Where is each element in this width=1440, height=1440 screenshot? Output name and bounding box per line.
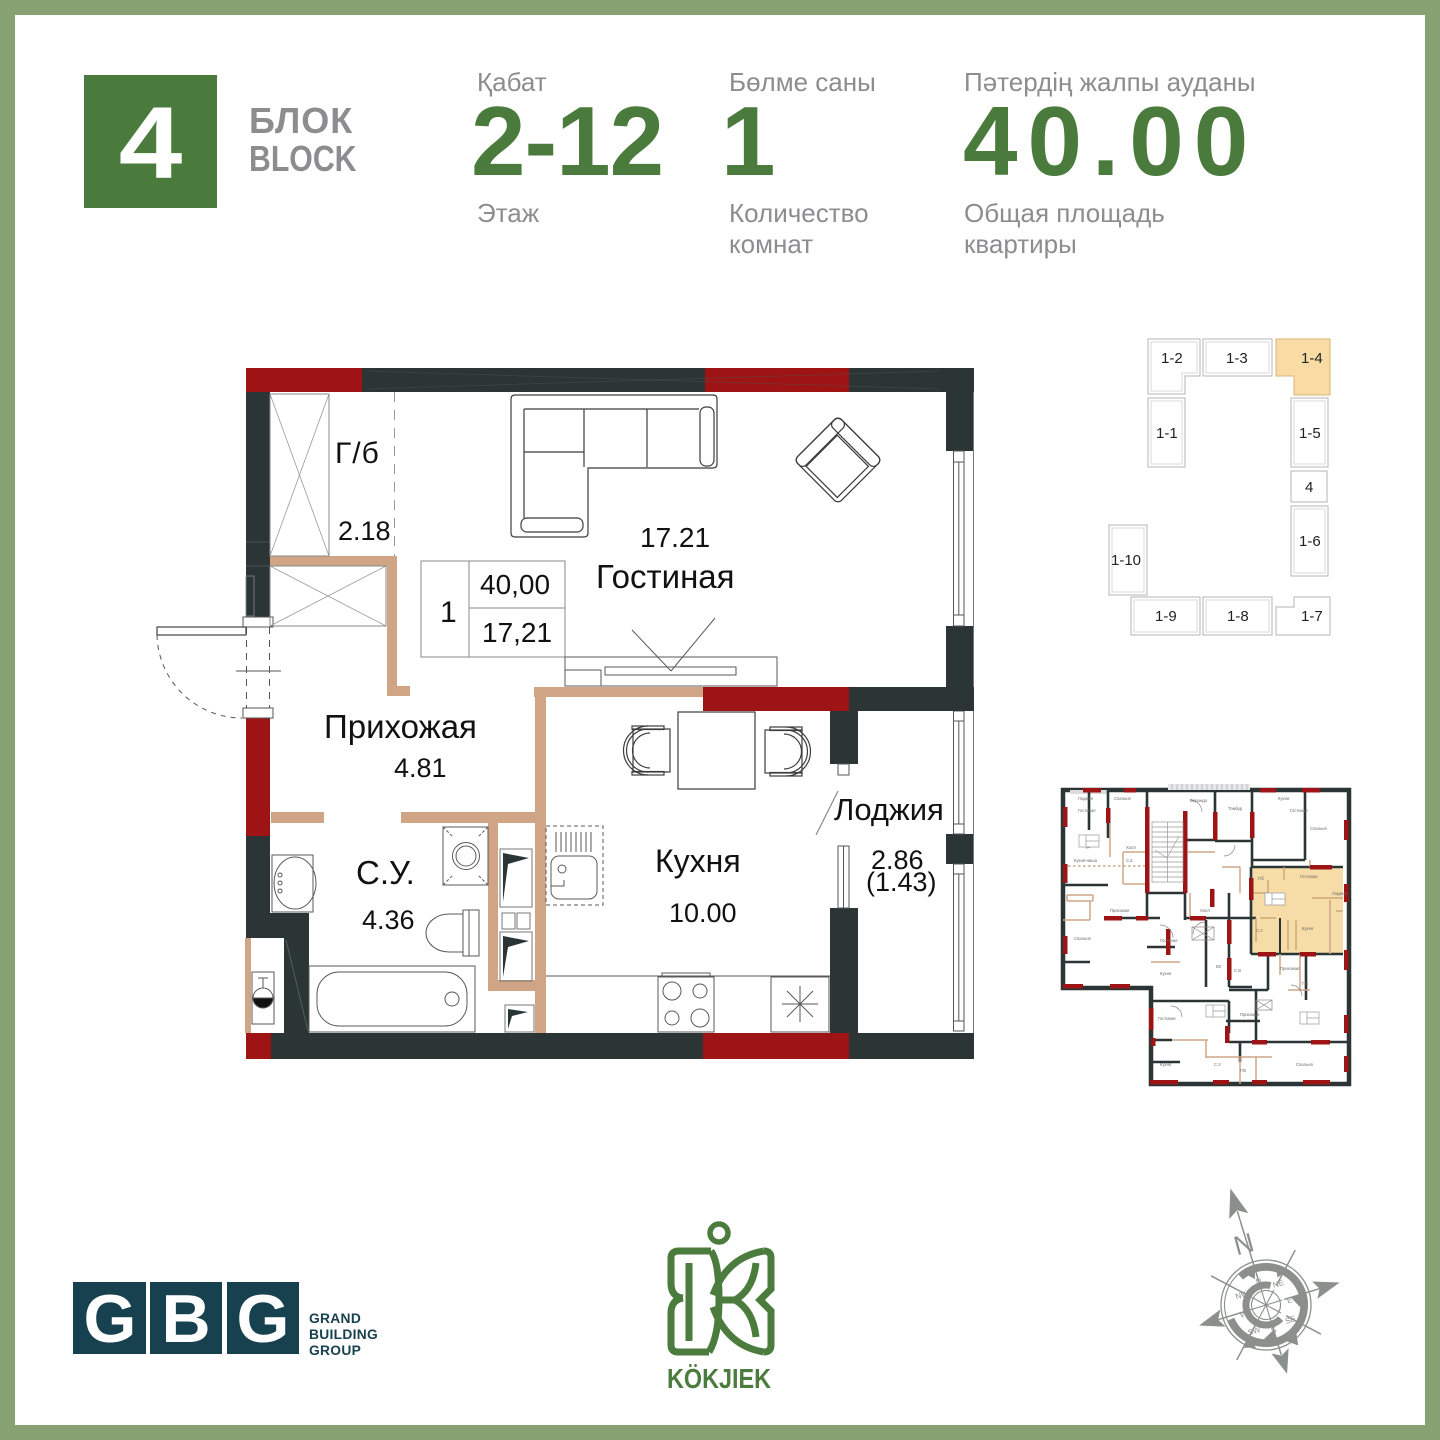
svg-text:Спальня: Спальня — [1310, 826, 1327, 831]
svg-text:1-3: 1-3 — [1226, 350, 1248, 367]
svg-text:Прихожая: Прихожая — [324, 708, 477, 745]
svg-text:1-1: 1-1 — [1156, 425, 1178, 442]
svg-text:Гостиная: Гостиная — [1160, 938, 1178, 943]
svg-text:Гостиная: Гостиная — [1300, 874, 1318, 879]
svg-text:Кухня: Кухня — [1160, 971, 1171, 976]
svg-text:1-5: 1-5 — [1299, 425, 1321, 442]
svg-text:Прихожая: Прихожая — [1240, 1012, 1259, 1017]
svg-text:Г/б: Г/б — [1258, 876, 1264, 881]
svg-text:Кухня-ниша: Кухня-ниша — [1074, 858, 1098, 863]
svg-text:Гостиная: Гостиная — [1158, 1016, 1176, 1021]
svg-text:1-8: 1-8 — [1227, 608, 1249, 625]
svg-text:G: G — [237, 1281, 290, 1357]
svg-text:Лоджия: Лоджия — [1078, 796, 1093, 801]
svg-text:N: N — [1230, 1227, 1257, 1261]
svg-text:Холл: Холл — [1126, 845, 1136, 850]
svg-text:1-4: 1-4 — [1301, 350, 1323, 367]
svg-text:NE: NE — [1272, 1278, 1285, 1290]
svg-text:S: S — [1270, 1325, 1278, 1335]
svg-text:Гостиная: Гостиная — [1290, 808, 1308, 813]
svg-text:2.18: 2.18 — [338, 516, 391, 546]
svg-text:Тамбур: Тамбур — [1228, 806, 1243, 811]
svg-text:Гостиная: Гостиная — [1078, 808, 1096, 813]
svg-text:1-7: 1-7 — [1301, 608, 1323, 625]
svg-text:17,21: 17,21 — [482, 617, 552, 648]
svg-text:KÖKJIEK: KÖKJIEK — [667, 1363, 771, 1394]
svg-text:Г/б: Г/б — [335, 437, 380, 470]
svg-text:Спальня: Спальня — [1114, 796, 1131, 801]
svg-text:С.У: С.У — [1214, 1062, 1221, 1067]
svg-text:Прихожая: Прихожая — [1110, 908, 1129, 913]
svg-text:С.в: С.в — [1126, 858, 1133, 863]
svg-text:17.21: 17.21 — [640, 522, 710, 553]
svg-text:Кухня: Кухня — [655, 843, 741, 879]
svg-text:1-10: 1-10 — [1111, 552, 1141, 569]
svg-text:Спальня: Спальня — [1074, 936, 1091, 941]
svg-text:Веранда: Веранда — [1190, 798, 1208, 803]
svg-text:GRAND: GRAND — [309, 1311, 361, 1326]
svg-text:Спальня: Спальня — [1296, 1062, 1313, 1067]
svg-text:Лоджия: Лоджия — [834, 792, 944, 827]
svg-text:1-6: 1-6 — [1299, 533, 1321, 550]
svg-text:С.У: С.У — [1256, 928, 1263, 933]
svg-text:G: G — [84, 1281, 137, 1357]
svg-text:10.00: 10.00 — [669, 898, 737, 928]
svg-text:Прихожая: Прихожая — [1280, 966, 1299, 971]
svg-text:B: B — [161, 1281, 210, 1357]
svg-text:GROUP: GROUP — [309, 1343, 361, 1358]
svg-text:N: N — [1255, 1276, 1263, 1286]
svg-text:1: 1 — [440, 596, 457, 629]
svg-text:С.В: С.В — [1234, 968, 1241, 973]
svg-text:Г/Б: Г/Б — [1302, 981, 1308, 986]
svg-text:Г/Б: Г/Б — [1240, 1068, 1246, 1073]
svg-text:BUILDING: BUILDING — [309, 1327, 378, 1342]
svg-text:Гостиная: Гостиная — [596, 558, 735, 595]
svg-text:Кухня: Кухня — [1278, 796, 1289, 801]
svg-text:4.36: 4.36 — [362, 905, 415, 935]
svg-text:ВХ: ВХ — [1216, 964, 1222, 969]
svg-text:4.81: 4.81 — [394, 753, 447, 783]
svg-text:С.У.: С.У. — [356, 854, 415, 891]
svg-text:1-2: 1-2 — [1161, 350, 1183, 367]
svg-text:Холл: Холл — [1200, 908, 1210, 913]
svg-text:Лоджия: Лоджия — [1332, 891, 1347, 896]
svg-text:1-9: 1-9 — [1155, 608, 1177, 625]
svg-text:40,00: 40,00 — [480, 569, 550, 600]
svg-text:4: 4 — [1305, 479, 1313, 496]
svg-text:Кухня: Кухня — [1160, 1062, 1171, 1067]
svg-text:(1.43): (1.43) — [866, 867, 937, 897]
svg-text:Кухня: Кухня — [1302, 926, 1313, 931]
